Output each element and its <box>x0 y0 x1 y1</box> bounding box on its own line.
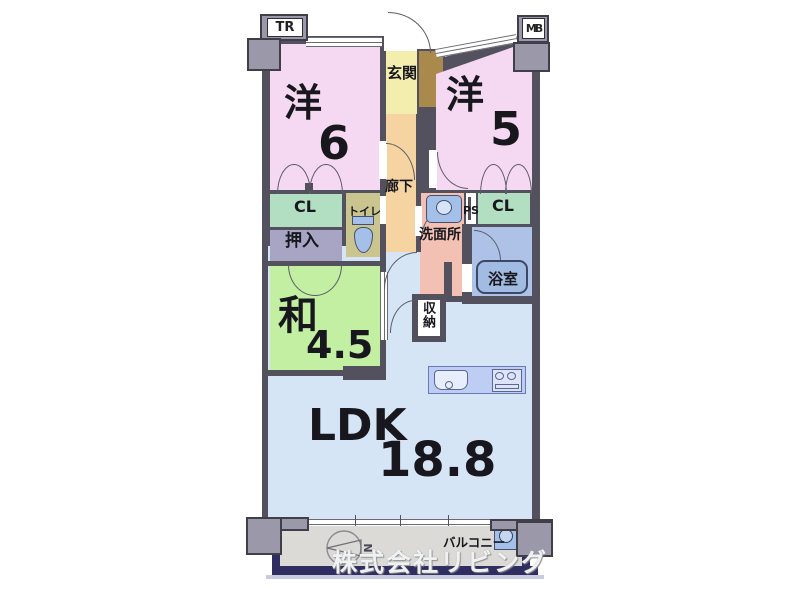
door-gap-bath <box>462 264 472 292</box>
western6-area-label: 6 <box>318 120 350 166</box>
stove-burner-right-icon <box>507 372 516 380</box>
floor-plan: N TR MB 洋 6 洋 5 玄関 廊下 トイレ CL CL PS 押入 洗面… <box>0 0 800 600</box>
hallway-label: 廊下 <box>385 180 413 194</box>
oshiire-label: 押入 <box>285 233 319 250</box>
pipe-space-label: PS <box>463 205 479 216</box>
washroom-label: 洗面所 <box>419 228 461 242</box>
ldk-area-label: 18.8 <box>378 436 496 484</box>
window-western6-top <box>306 37 382 47</box>
pillar-top-left-body <box>247 38 281 71</box>
trunk-room-label: TR <box>276 20 295 35</box>
storage-label: 収納 <box>421 301 434 329</box>
kitchen-sink-drain-icon <box>445 381 453 389</box>
japanese-area-label: 4.5 <box>306 326 373 364</box>
stove-burner-left-icon <box>495 372 504 380</box>
meter-box: MB <box>522 18 545 39</box>
western6-name-label: 洋 <box>284 84 322 122</box>
pillar-bottom-left-block <box>246 517 282 555</box>
western5-name-label: 洋 <box>446 76 484 114</box>
trunk-room-box: TR <box>267 18 303 37</box>
meter-box-label: MB <box>526 22 541 35</box>
closet-left-handle <box>305 183 313 191</box>
wall-bath-bottom <box>462 296 540 304</box>
door-gap-western5 <box>429 150 437 188</box>
washbasin-bowl-icon <box>436 200 452 215</box>
pillar-meter-box-body <box>513 42 550 72</box>
entrance-label: 玄関 <box>387 66 417 81</box>
watermark-text: 株式会社リビング <box>332 550 548 575</box>
toilet-label: トイレ <box>348 206 381 217</box>
entrance-door-arc <box>388 12 431 53</box>
closet-left-label: CL <box>294 199 316 215</box>
stove-grill-icon <box>495 384 519 389</box>
bathroom-label: 浴室 <box>488 272 518 287</box>
western5-area-label: 5 <box>490 106 522 152</box>
room-entrance <box>386 51 417 114</box>
closet-right-label: CL <box>492 198 514 214</box>
wall-washitsu-jut <box>343 366 386 380</box>
